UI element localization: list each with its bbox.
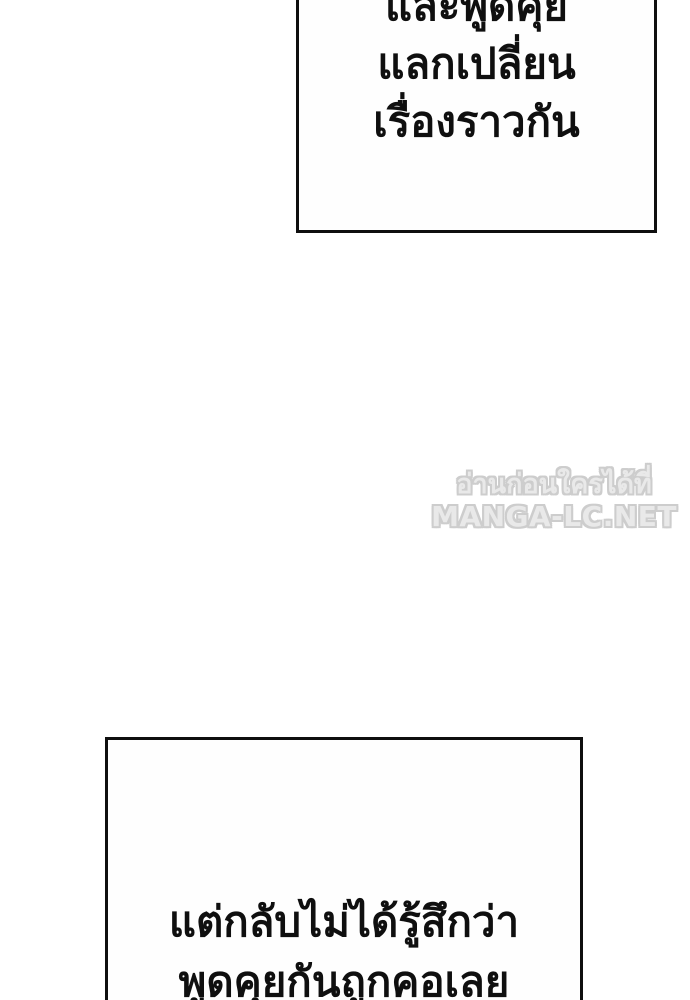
top-caption-box: และพูดคุย แลกเปลี่ยน เรื่องราวกัน (296, 0, 657, 233)
caption-line: และพูดคุย (299, 0, 654, 35)
watermark-tagline: อ่านก่อนใครได้ที่ (431, 468, 677, 502)
caption-line: แต่กลับไม่ได้รู้สึกว่า (108, 892, 580, 952)
caption-line: เรื่องราวกัน (299, 93, 654, 151)
watermark-site-name: MANGA-LC.NET (431, 502, 677, 532)
caption-line: แลกเปลี่ยน (299, 35, 654, 93)
manga-page: และพูดคุย แลกเปลี่ยน เรื่องราวกัน อ่านก่… (0, 0, 690, 1000)
bottom-caption-text: แต่กลับไม่ได้รู้สึกว่า พูดคุยกันถูกคอเลย (108, 892, 580, 1000)
site-watermark: อ่านก่อนใครได้ที่ MANGA-LC.NET (431, 468, 677, 532)
top-caption-text: และพูดคุย แลกเปลี่ยน เรื่องราวกัน (299, 0, 654, 151)
bottom-caption-box: แต่กลับไม่ได้รู้สึกว่า พูดคุยกันถูกคอเลย (105, 737, 583, 1000)
caption-line: พูดคุยกันถูกคอเลย (108, 952, 580, 1000)
